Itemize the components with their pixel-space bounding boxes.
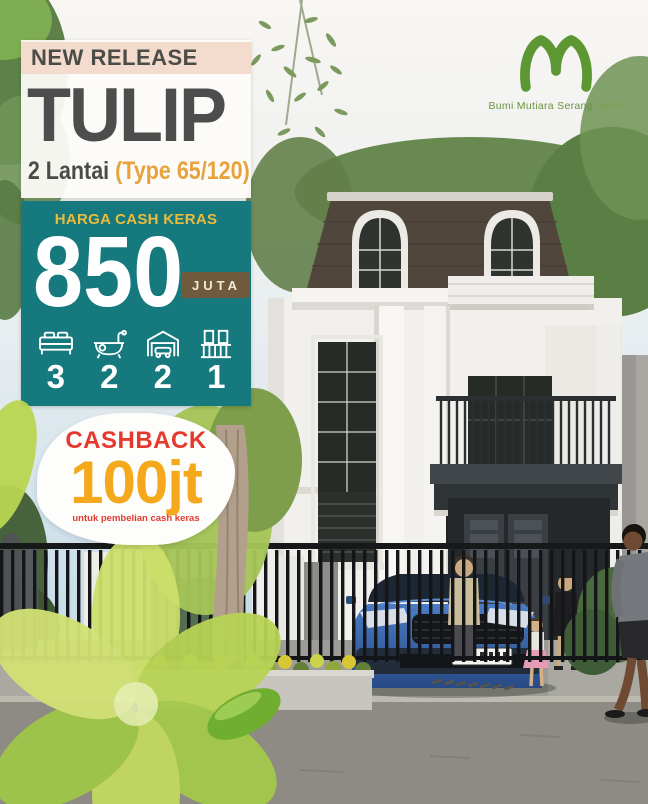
price-card: HARGA CASH KERAS 850 JUTA 3 bbox=[21, 201, 251, 407]
brand-name: Bumi Mutiara Serang ideal bbox=[472, 97, 640, 113]
garage-count: 2 bbox=[138, 360, 188, 395]
property-flyer: Bumi Mutiara Serang ideal NEW RELEASE TU… bbox=[0, 0, 648, 804]
price-value: 850 bbox=[33, 222, 183, 322]
price-unit-badge: JUTA bbox=[181, 272, 249, 298]
bathtub-icon bbox=[90, 328, 128, 360]
bathroom-count: 2 bbox=[84, 360, 134, 395]
leaf-m-monogram-icon bbox=[508, 32, 604, 94]
brand-name-text: Bumi Mutiara Serang bbox=[488, 100, 592, 112]
brand-logo: Bumi Mutiara Serang ideal bbox=[472, 32, 640, 113]
feature-bathrooms: 2 bbox=[84, 328, 134, 395]
bed-icon bbox=[37, 328, 75, 360]
type-label: (Type 65/120) bbox=[115, 157, 250, 185]
balcony-icon bbox=[197, 328, 235, 360]
bedroom-count: 3 bbox=[31, 360, 81, 395]
cashback-amount: 100jt bbox=[37, 455, 235, 510]
window bbox=[310, 337, 384, 570]
feature-balcony: 1 bbox=[191, 328, 241, 395]
new-release-badge: NEW RELEASE bbox=[21, 42, 251, 74]
feature-row: 3 2 bbox=[21, 328, 251, 395]
balcony-count: 1 bbox=[191, 360, 241, 395]
brand-tagline: ideal bbox=[596, 97, 624, 112]
title-card: NEW RELEASE TULIP 2 Lantai (Type 65/120) bbox=[21, 40, 251, 198]
garage-icon bbox=[144, 328, 182, 360]
floors-label: 2 Lantai bbox=[28, 157, 109, 185]
dormer-window bbox=[352, 210, 408, 292]
project-title: TULIP bbox=[21, 74, 251, 153]
project-subtitle: 2 Lantai (Type 65/120) bbox=[21, 149, 219, 190]
feature-bedrooms: 3 bbox=[31, 328, 81, 395]
cashback-note: untuk pembelian cash keras bbox=[37, 513, 235, 524]
cashback-badge: CASHBACK 100jt untuk pembelian cash kera… bbox=[37, 413, 235, 545]
price-row: 850 JUTA bbox=[21, 228, 251, 320]
promo-panel: NEW RELEASE TULIP 2 Lantai (Type 65/120)… bbox=[21, 40, 251, 545]
feature-garage: 2 bbox=[138, 328, 188, 395]
